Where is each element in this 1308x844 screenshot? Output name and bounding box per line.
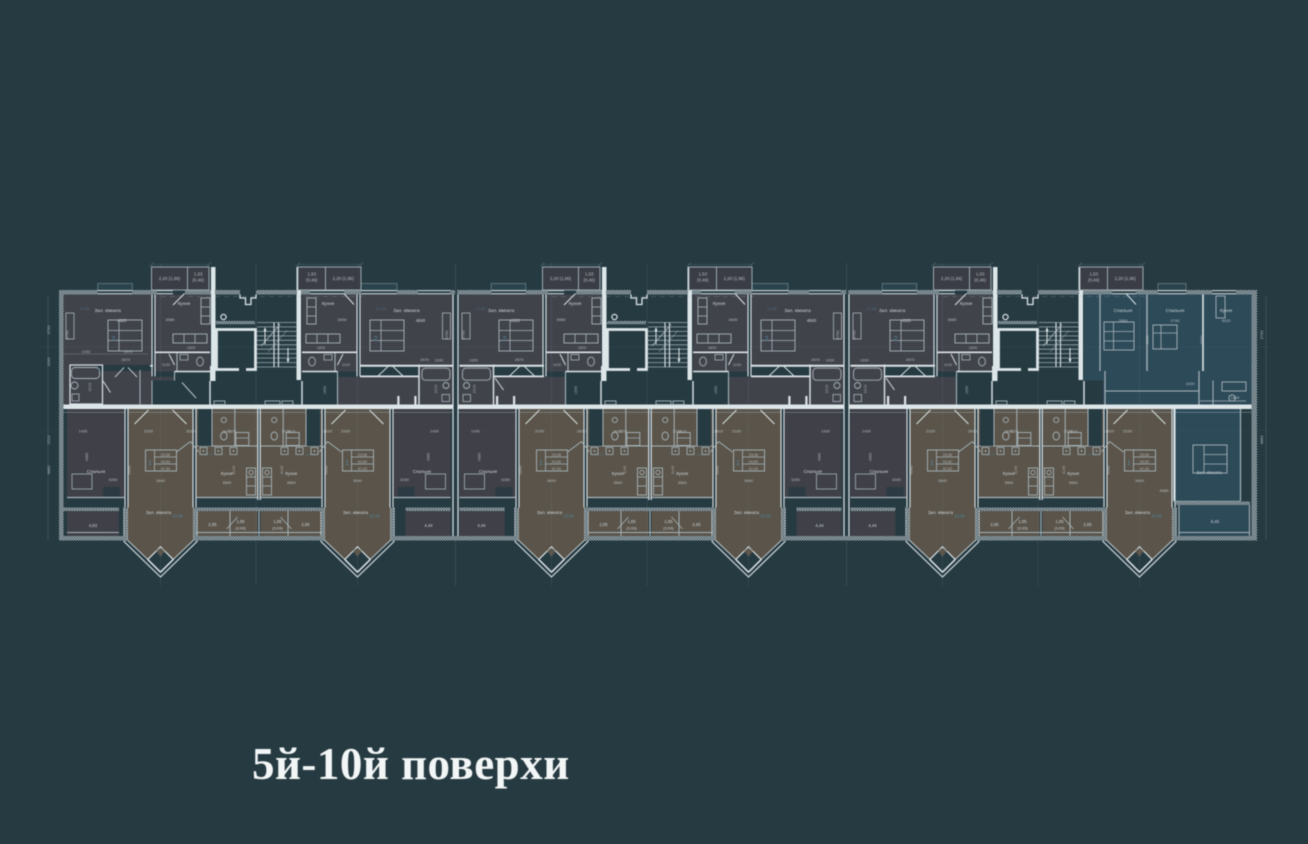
- svg-text:4480: 4480: [1160, 488, 1170, 493]
- svg-text:4880: 4880: [1259, 435, 1264, 445]
- svg-text:1,85: 1,85: [273, 519, 282, 524]
- svg-text:43,50: 43,50: [943, 460, 952, 464]
- svg-text:23,06: 23,06: [172, 514, 183, 519]
- svg-text:Зал. кімната: Зал. кімната: [1196, 470, 1222, 475]
- svg-text:2670: 2670: [124, 349, 133, 354]
- svg-text:6940: 6940: [1106, 465, 1111, 475]
- svg-text:1650: 1650: [965, 386, 969, 394]
- svg-text:(0,46): (0,46): [697, 278, 709, 283]
- svg-text:6940: 6940: [127, 465, 132, 475]
- svg-text:3140: 3140: [1062, 466, 1066, 474]
- svg-text:Кухня: Кухня: [676, 471, 688, 476]
- svg-text:23,06: 23,06: [1140, 453, 1149, 457]
- svg-text:4880: 4880: [46, 465, 51, 475]
- svg-text:2100: 2100: [535, 429, 545, 434]
- svg-text:2210: 2210: [88, 383, 92, 391]
- svg-text:(0,46): (0,46): [583, 278, 595, 283]
- svg-text:Зал. кімната: Зал. кімната: [95, 308, 122, 313]
- svg-text:2670: 2670: [515, 357, 524, 362]
- svg-text:4,44: 4,44: [424, 523, 433, 528]
- svg-text:3500: 3500: [678, 480, 688, 485]
- svg-text:3790: 3790: [1259, 330, 1264, 340]
- svg-text:3640: 3640: [744, 478, 754, 483]
- svg-text:Зал. кімната: Зал. кімната: [393, 308, 420, 313]
- svg-text:3280: 3280: [892, 477, 902, 482]
- svg-text:1,85: 1,85: [236, 519, 245, 524]
- svg-text:2100: 2100: [1123, 429, 1133, 434]
- svg-text:4880: 4880: [426, 452, 431, 461]
- svg-text:3020: 3020: [1222, 318, 1232, 323]
- svg-text:2,20 (1,96): 2,20 (1,96): [1115, 276, 1137, 281]
- svg-text:2610: 2610: [968, 429, 978, 434]
- svg-text:3790: 3790: [1199, 335, 1204, 345]
- svg-text:10,73: 10,73: [594, 453, 603, 457]
- svg-text:4620: 4620: [902, 318, 912, 323]
- svg-text:3790: 3790: [65, 330, 70, 340]
- svg-text:3500: 3500: [1069, 480, 1079, 485]
- svg-text:2610: 2610: [323, 429, 333, 434]
- svg-text:Спальня: Спальня: [479, 469, 498, 474]
- svg-text:Спальня: Спальня: [1114, 308, 1133, 313]
- svg-text:Спальня: Спальня: [1166, 308, 1185, 313]
- svg-text:3980: 3980: [166, 317, 176, 322]
- svg-text:3640: 3640: [1135, 478, 1145, 483]
- svg-text:2,85: 2,85: [990, 522, 999, 527]
- svg-text:Зал. кімната: Зал. кімната: [928, 510, 954, 515]
- svg-text:Кухня: Кухня: [322, 301, 335, 306]
- svg-text:1,85: 1,85: [1055, 519, 1064, 524]
- svg-text:Зал. кімната: Зал. кімната: [343, 510, 369, 515]
- svg-text:1830: 1830: [435, 358, 444, 363]
- svg-text:1800: 1800: [969, 346, 977, 350]
- svg-text:Зал. кімната: Зал. кімната: [146, 510, 172, 515]
- svg-text:3790: 3790: [835, 330, 840, 340]
- svg-text:4880: 4880: [817, 452, 822, 461]
- svg-text:2,85: 2,85: [301, 522, 310, 527]
- svg-text:1: 1: [148, 458, 152, 467]
- svg-text:2310: 2310: [619, 430, 627, 434]
- svg-text:2310: 2310: [1010, 430, 1018, 434]
- svg-text:3640: 3640: [938, 478, 948, 483]
- svg-text:Зал. кімната: Зал. кімната: [488, 308, 515, 313]
- svg-text:(3,93): (3,93): [663, 526, 674, 531]
- svg-text:1100: 1100: [733, 363, 741, 367]
- svg-text:2100: 2100: [144, 429, 154, 434]
- svg-text:1800: 1800: [187, 346, 195, 350]
- svg-text:1: 1: [930, 458, 934, 467]
- svg-text:(0,46): (0,46): [1088, 278, 1100, 283]
- svg-text:2,20 (1,96): 2,20 (1,96): [550, 276, 572, 281]
- svg-text:2100: 2100: [341, 429, 351, 434]
- svg-text:Спальня: Спальня: [413, 469, 432, 474]
- svg-text:1: 1: [736, 458, 740, 467]
- svg-text:3980: 3980: [948, 317, 958, 322]
- svg-text:2210: 2210: [864, 385, 868, 393]
- svg-text:10,73: 10,73: [696, 453, 705, 457]
- svg-text:2310: 2310: [673, 430, 681, 434]
- svg-text:3790: 3790: [461, 330, 466, 340]
- svg-text:4880: 4880: [84, 452, 89, 461]
- svg-text:2670: 2670: [420, 357, 429, 362]
- svg-text:2210: 2210: [46, 435, 51, 445]
- svg-text:23,06: 23,06: [1151, 514, 1162, 519]
- svg-text:2670: 2670: [811, 357, 820, 362]
- svg-text:10,73: 10,73: [203, 453, 212, 457]
- svg-text:6940: 6940: [324, 465, 329, 475]
- svg-text:47,20: 47,20: [358, 467, 367, 471]
- svg-text:3500: 3500: [287, 480, 297, 485]
- svg-text:5й-10й поверхи: 5й-10й поверхи: [252, 739, 570, 789]
- svg-text:2210: 2210: [825, 385, 829, 393]
- svg-text:Зал. кімната: Зал. кімната: [734, 510, 760, 515]
- svg-text:(3,93): (3,93): [626, 526, 637, 531]
- svg-text:23,06: 23,06: [369, 514, 380, 519]
- svg-text:1,53: 1,53: [699, 272, 708, 277]
- svg-text:4840: 4840: [416, 318, 426, 323]
- svg-text:2,85: 2,85: [1083, 522, 1092, 527]
- svg-text:4880: 4880: [477, 452, 482, 461]
- svg-text:1: 1: [1127, 458, 1131, 467]
- svg-text:2740: 2740: [1171, 318, 1181, 323]
- svg-text:2310: 2310: [1064, 430, 1072, 434]
- svg-text:(0,46): (0,46): [306, 278, 318, 283]
- svg-text:Кухня: Кухня: [713, 301, 726, 306]
- svg-text:6940: 6940: [518, 465, 523, 475]
- svg-text:4,44: 4,44: [477, 523, 486, 528]
- svg-text:3400: 3400: [338, 317, 348, 322]
- svg-text:23,06: 23,06: [749, 453, 758, 457]
- svg-text:1800: 1800: [317, 346, 325, 350]
- svg-text:(0,46): (0,46): [974, 278, 986, 283]
- svg-text:1,85: 1,85: [1018, 519, 1027, 524]
- svg-text:2: 2: [893, 334, 897, 343]
- svg-text:2,20 (1,96): 2,20 (1,96): [333, 276, 355, 281]
- svg-text:1830: 1830: [860, 358, 869, 363]
- svg-text:3500: 3500: [1004, 480, 1014, 485]
- svg-text:2210: 2210: [434, 385, 438, 393]
- svg-text:1830: 1830: [1186, 381, 1196, 386]
- svg-text:3790: 3790: [46, 325, 51, 335]
- svg-text:Кухня: Кухня: [569, 301, 582, 306]
- svg-text:Кухня: Кухня: [178, 301, 191, 306]
- svg-text:3640: 3640: [547, 478, 557, 483]
- svg-text:1,85: 1,85: [627, 519, 636, 524]
- svg-text:(3,93): (3,93): [1017, 526, 1028, 531]
- svg-text:3140: 3140: [280, 466, 284, 474]
- svg-text:2610: 2610: [186, 429, 196, 434]
- svg-text:43,50: 43,50: [1140, 460, 1149, 464]
- svg-text:23,06: 23,06: [358, 453, 367, 457]
- svg-text:Зал. кімната: Зал. кімната: [537, 510, 563, 515]
- svg-text:2,20 (1,96): 2,20 (1,96): [159, 276, 181, 281]
- svg-text:Кухня: Кухня: [1067, 471, 1079, 476]
- svg-text:2310: 2310: [228, 430, 236, 434]
- svg-text:4620: 4620: [511, 318, 521, 323]
- svg-text:2610: 2610: [714, 429, 724, 434]
- svg-text:Зал. кімната: Зал. кімната: [879, 308, 906, 313]
- svg-text:1650: 1650: [323, 386, 327, 394]
- svg-text:2: 2: [111, 334, 115, 343]
- svg-text:23,06: 23,06: [563, 514, 574, 519]
- svg-text:3280: 3280: [400, 477, 410, 482]
- svg-text:1100: 1100: [553, 363, 561, 367]
- svg-text:3140: 3140: [623, 466, 627, 474]
- svg-text:(0,46): (0,46): [192, 278, 204, 283]
- svg-text:3980: 3980: [557, 317, 567, 322]
- svg-text:3640: 3640: [353, 478, 363, 483]
- svg-text:3400: 3400: [729, 317, 739, 322]
- svg-text:2,20 (1,96): 2,20 (1,96): [941, 276, 963, 281]
- svg-text:23,06: 23,06: [161, 453, 170, 457]
- svg-text:4220: 4220: [1145, 335, 1150, 345]
- svg-text:1,53: 1,53: [194, 272, 203, 277]
- svg-text:2670: 2670: [906, 357, 915, 362]
- svg-text:2100: 2100: [732, 429, 742, 434]
- svg-text:Спальня: Спальня: [87, 469, 106, 474]
- svg-text:1650: 1650: [714, 386, 718, 394]
- svg-text:(3,93): (3,93): [272, 526, 283, 531]
- svg-text:4,44: 4,44: [815, 523, 824, 528]
- svg-text:17,45: 17,45: [476, 307, 486, 311]
- svg-text:1,53: 1,53: [308, 272, 317, 277]
- svg-text:47,20: 47,20: [749, 467, 758, 471]
- svg-text:1430: 1430: [821, 429, 830, 434]
- svg-text:Кухня: Кухня: [1220, 308, 1233, 313]
- svg-text:23,06: 23,06: [954, 514, 965, 519]
- svg-text:2310: 2310: [282, 430, 290, 434]
- svg-text:43,50: 43,50: [749, 460, 758, 464]
- svg-text:Кухня: Кухня: [285, 471, 297, 476]
- svg-text:3140: 3140: [1014, 466, 1018, 474]
- svg-text:6940: 6940: [715, 465, 720, 475]
- svg-text:2: 2: [373, 334, 377, 343]
- svg-text:3140: 3140: [671, 466, 675, 474]
- svg-text:2,85: 2,85: [692, 522, 701, 527]
- svg-text:10,73: 10,73: [985, 453, 994, 457]
- svg-text:Спальня: Спальня: [870, 469, 889, 474]
- svg-text:Кухня: Кухня: [960, 301, 973, 306]
- svg-text:43,50: 43,50: [552, 460, 561, 464]
- svg-text:(3,93): (3,93): [235, 526, 246, 531]
- svg-text:2,85: 2,85: [208, 522, 217, 527]
- svg-text:17,45: 17,45: [767, 307, 777, 311]
- svg-text:3280: 3280: [501, 477, 511, 482]
- svg-text:1,85: 1,85: [664, 519, 673, 524]
- svg-text:1430: 1430: [1231, 395, 1241, 400]
- svg-text:3790: 3790: [852, 330, 857, 340]
- svg-text:23,06: 23,06: [943, 453, 952, 457]
- svg-text:6,40: 6,40: [1211, 519, 1220, 524]
- svg-text:2100: 2100: [926, 429, 936, 434]
- svg-text:1: 1: [345, 458, 349, 467]
- svg-text:2: 2: [764, 334, 768, 343]
- svg-text:3280: 3280: [109, 477, 119, 482]
- svg-text:Зал. кімната: Зал. кімната: [784, 308, 811, 313]
- svg-text:1: 1: [539, 458, 543, 467]
- svg-text:1,53: 1,53: [1090, 272, 1099, 277]
- svg-text:17,45: 17,45: [376, 307, 386, 311]
- svg-text:1100: 1100: [162, 363, 170, 367]
- svg-text:23,06: 23,06: [552, 453, 561, 457]
- svg-text:1930: 1930: [82, 349, 91, 354]
- svg-text:2210: 2210: [473, 385, 477, 393]
- svg-text:10,73: 10,73: [1087, 453, 1096, 457]
- svg-text:4840: 4840: [807, 318, 817, 323]
- svg-text:1430: 1430: [471, 429, 480, 434]
- svg-text:3790: 3790: [444, 330, 449, 340]
- svg-text:1,53: 1,53: [976, 272, 985, 277]
- svg-text:3140: 3140: [232, 466, 236, 474]
- svg-text:2,20 (1,96): 2,20 (1,96): [724, 276, 746, 281]
- svg-text:1100: 1100: [342, 363, 350, 367]
- svg-text:43,50: 43,50: [358, 460, 367, 464]
- svg-text:23,06: 23,06: [760, 514, 771, 519]
- svg-text:2610: 2610: [1105, 429, 1115, 434]
- svg-text:47,20: 47,20: [1140, 467, 1149, 471]
- svg-text:2,85: 2,85: [599, 522, 608, 527]
- svg-text:Зал. кімната: Зал. кімната: [1125, 510, 1151, 515]
- svg-text:1430: 1430: [862, 429, 871, 434]
- svg-text:1830: 1830: [469, 358, 478, 363]
- svg-text:10,73: 10,73: [305, 453, 314, 457]
- svg-text:43,50: 43,50: [161, 460, 170, 464]
- svg-text:1800: 1800: [578, 346, 586, 350]
- svg-text:2: 2: [502, 334, 506, 343]
- svg-text:3500: 3500: [613, 480, 623, 485]
- svg-text:1430: 1430: [79, 429, 88, 434]
- svg-text:3640: 3640: [156, 478, 166, 483]
- svg-text:3280: 3280: [791, 477, 801, 482]
- svg-text:4,63: 4,63: [89, 523, 98, 528]
- svg-text:3500: 3500: [222, 480, 232, 485]
- svg-text:6940: 6940: [909, 465, 914, 475]
- svg-text:4880: 4880: [868, 452, 873, 461]
- svg-text:1830: 1830: [826, 358, 835, 363]
- svg-text:17,45: 17,45: [867, 307, 877, 311]
- svg-text:2670: 2670: [121, 357, 130, 362]
- svg-text:47,20: 47,20: [943, 467, 952, 471]
- svg-text:(3,93): (3,93): [1054, 526, 1065, 531]
- svg-text:2610: 2610: [577, 429, 587, 434]
- svg-text:1430: 1430: [430, 429, 439, 434]
- svg-text:1650: 1650: [574, 386, 578, 394]
- svg-text:1800: 1800: [708, 346, 716, 350]
- svg-text:47,20: 47,20: [552, 467, 561, 471]
- svg-text:17,45: 17,45: [80, 307, 90, 311]
- svg-text:Спальня: Спальня: [804, 469, 823, 474]
- svg-text:1100: 1100: [944, 363, 952, 367]
- svg-text:4,44: 4,44: [868, 523, 877, 528]
- svg-text:47,20: 47,20: [161, 467, 170, 471]
- svg-text:1930: 1930: [46, 357, 51, 367]
- svg-text:1,53: 1,53: [585, 272, 594, 277]
